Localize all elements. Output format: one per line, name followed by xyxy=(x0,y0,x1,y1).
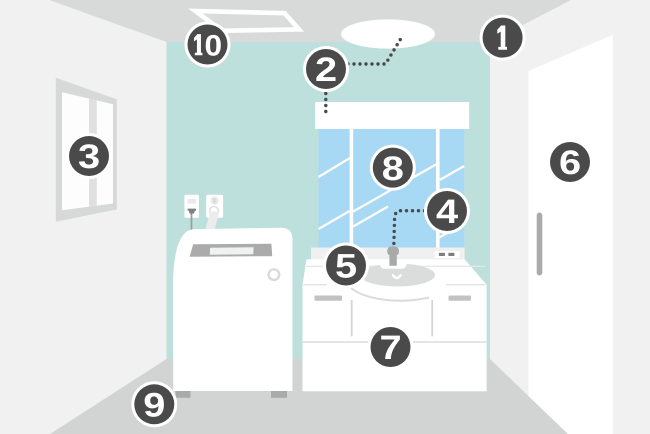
svg-text:4: 4 xyxy=(436,193,458,231)
svg-text:7: 7 xyxy=(379,329,401,367)
svg-text:2: 2 xyxy=(315,51,337,89)
svg-text:8: 8 xyxy=(382,150,404,188)
svg-text:9: 9 xyxy=(143,387,165,425)
svg-text:3: 3 xyxy=(78,138,100,176)
svg-text:0: 0 xyxy=(205,29,223,62)
svg-text:6: 6 xyxy=(559,144,581,182)
svg-text:5: 5 xyxy=(335,248,357,286)
